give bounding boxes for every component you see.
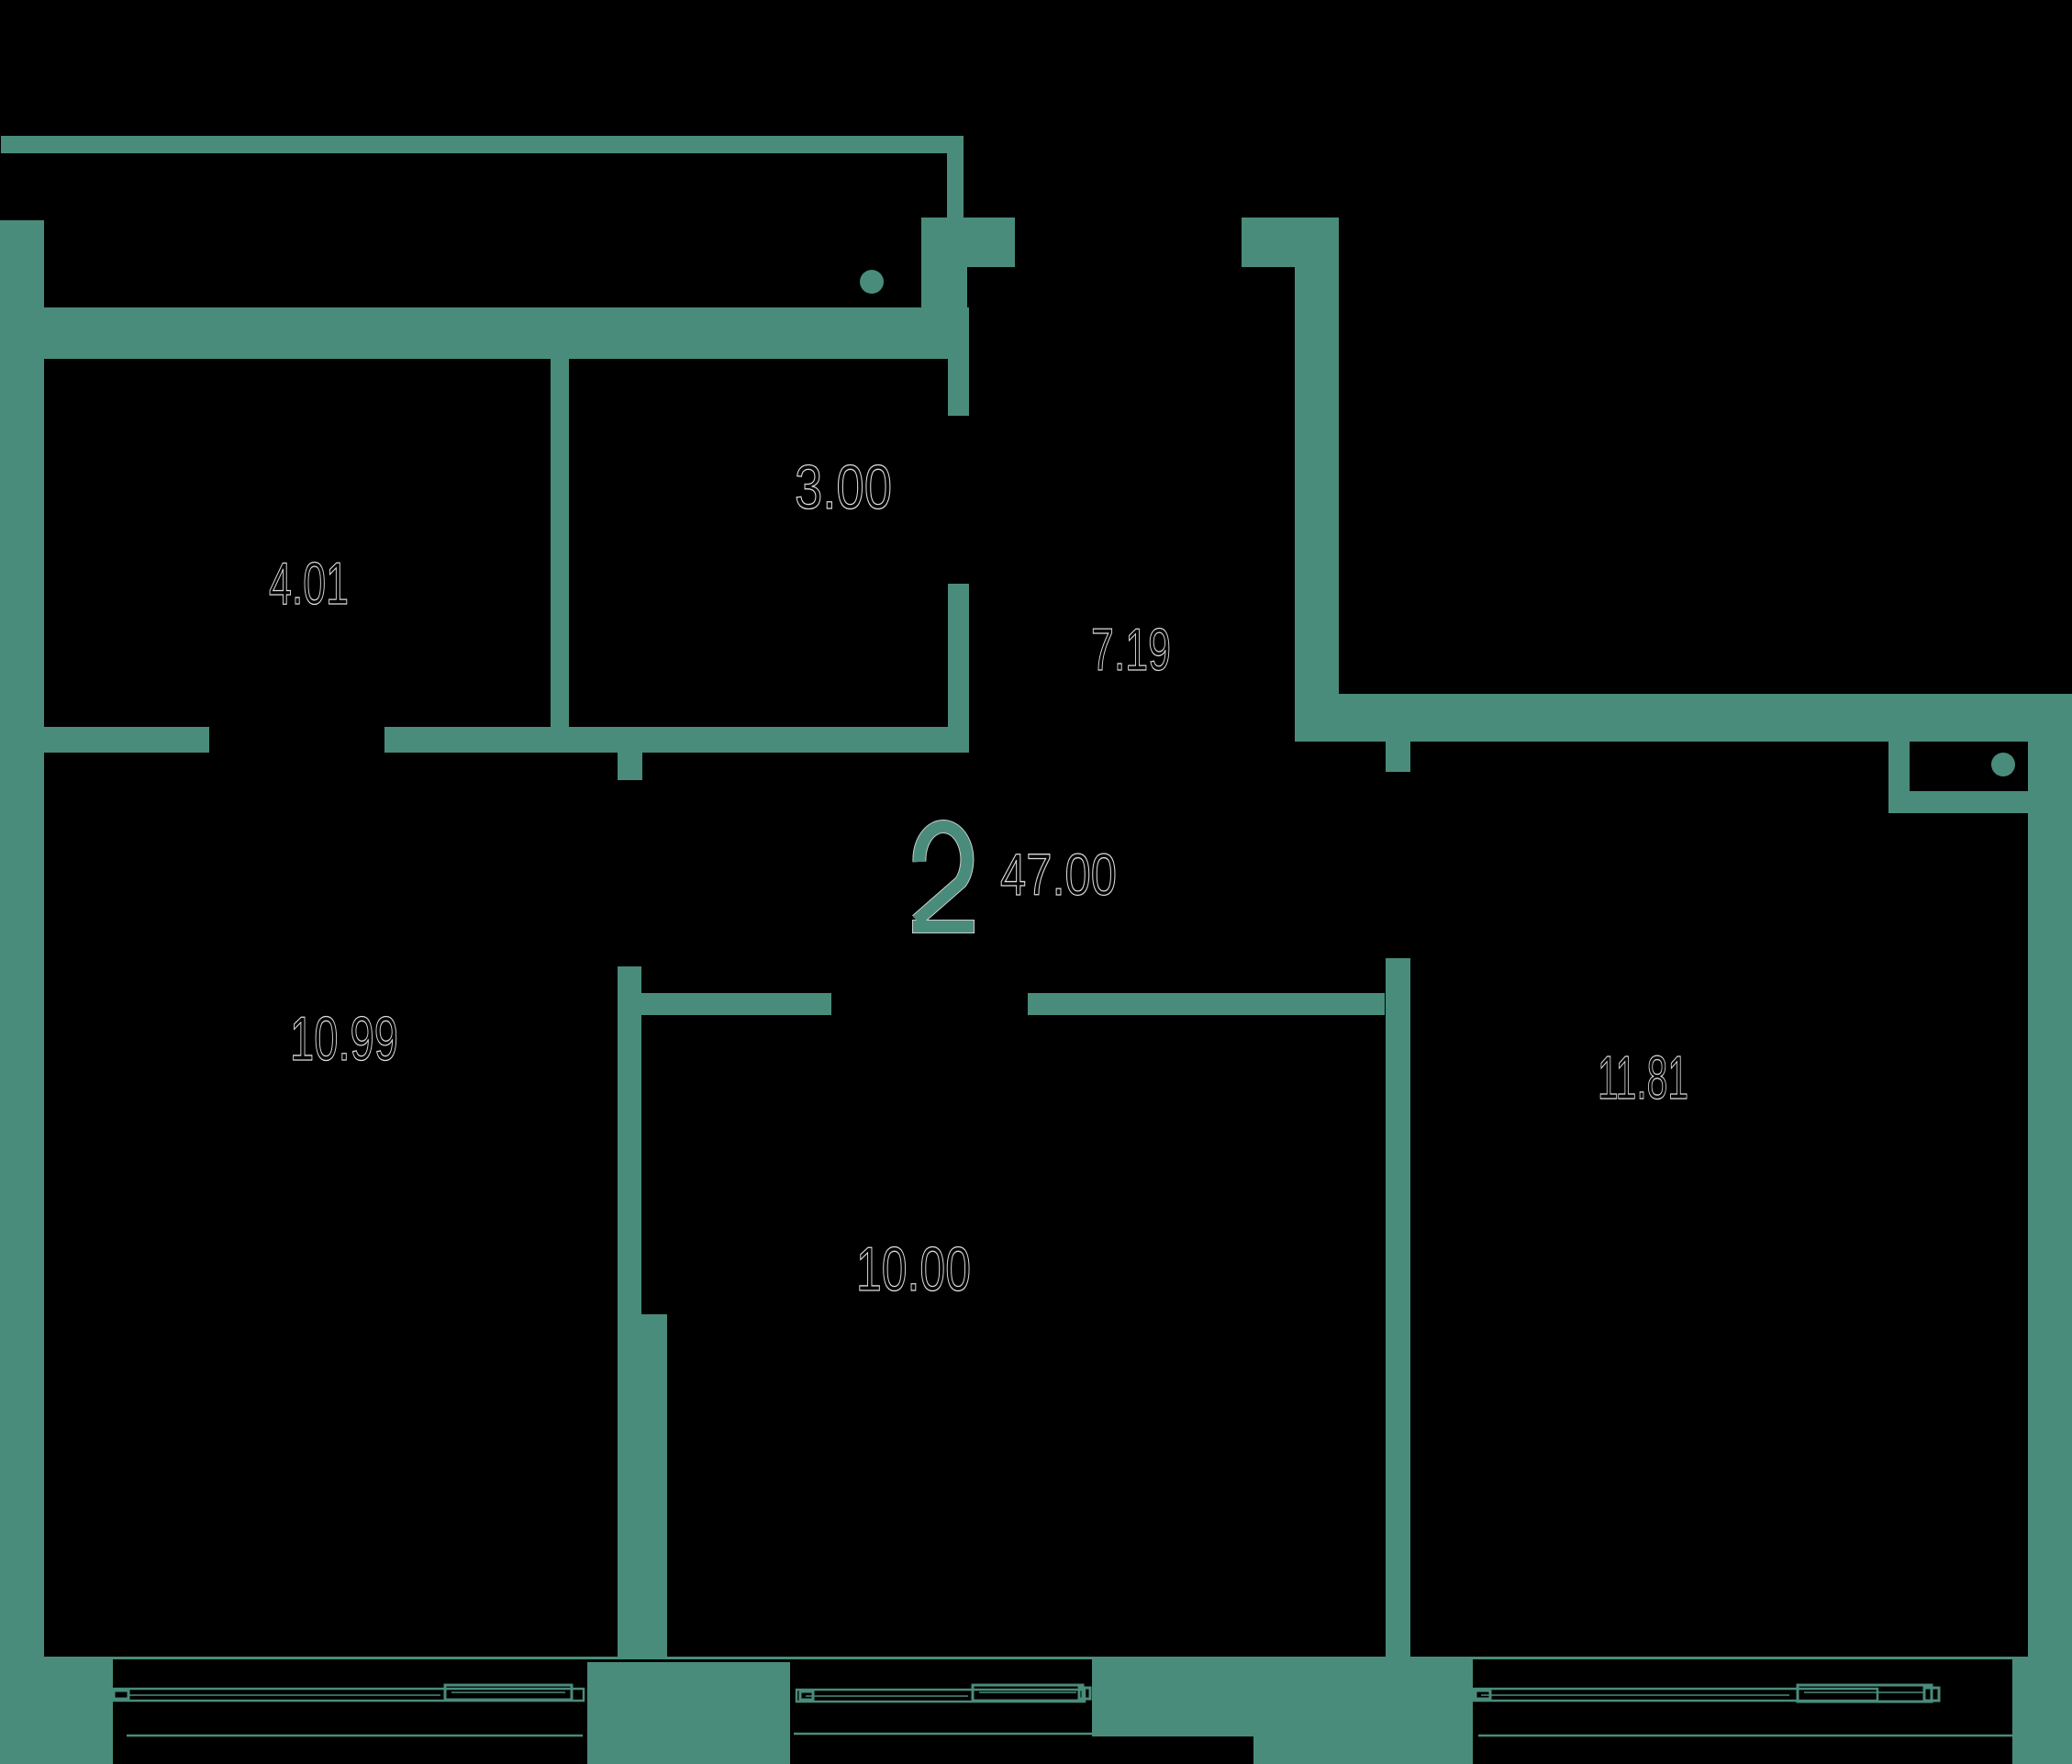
svg-text:4.01: 4.01 — [269, 550, 349, 617]
svg-text:10.99: 10.99 — [290, 1004, 398, 1074]
svg-text:10.00: 10.00 — [856, 1234, 971, 1304]
svg-text:11.81: 11.81 — [1598, 1044, 1688, 1112]
svg-text:3.00: 3.00 — [795, 452, 892, 522]
svg-text:7.19: 7.19 — [1091, 616, 1171, 683]
svg-text:47.00: 47.00 — [1000, 842, 1117, 908]
